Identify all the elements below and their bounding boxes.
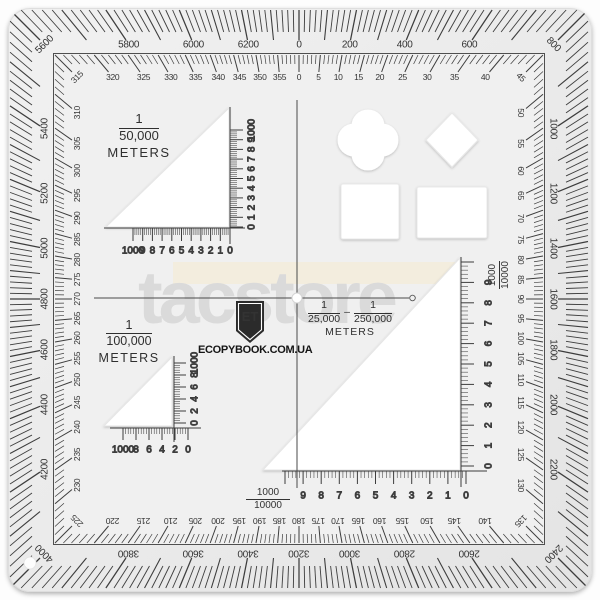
fraction-25k: 1 25,000 [308,300,340,325]
degree-tick [265,534,266,543]
degree-tick [55,152,64,157]
mil-tick [10,320,32,322]
degree-tick [353,55,355,64]
degree-tick [458,55,470,72]
mil-tick [374,10,380,32]
scale-number: 6 [484,340,495,346]
degree-tick [534,389,543,392]
degree-tick [489,526,503,543]
degree-label: 335 [189,72,203,82]
mil-tick [265,10,268,32]
mil-label: 3400 [237,548,259,559]
scale-number: 4 [484,381,495,387]
degree-tick [518,534,526,543]
degree-tick [534,152,543,157]
degree-tick [282,55,283,64]
degree-label: 195 [232,516,246,526]
degree-tick [534,324,543,325]
degree-tick [164,55,169,64]
mil-tick [10,52,32,71]
mil-tick [566,536,588,556]
degree-tick [180,534,184,543]
mil-tick [10,449,32,461]
degree-tick [224,534,227,543]
degree-tick [389,55,392,64]
degree-tick [158,55,168,72]
degree-tick [389,534,392,543]
degree-tick [489,534,496,543]
degree-tick [101,534,108,543]
mil-tick [358,10,363,32]
mil-tick [10,122,32,135]
mil-tick [98,566,113,588]
mil-tick [10,179,40,191]
mil-tick [230,566,235,588]
mil-tick [137,566,149,588]
mil-tick [386,10,393,32]
degree-tick [429,55,434,64]
degree-tick [55,247,64,249]
mil-tick [566,363,588,368]
fraction-denominator: 100,000 [106,334,151,348]
degree-tick [147,55,153,64]
degree-tick [534,180,543,184]
degree-tick [380,534,383,543]
mil-tick [10,369,32,375]
mil-tick [10,463,32,476]
degree-tick [534,269,543,270]
mil-tick [566,501,588,518]
degree-tick [332,534,333,543]
degree-label: 155 [395,516,409,526]
degree-tick [269,534,270,543]
mil-tick [10,217,32,223]
degree-tick [534,108,543,115]
mil-tick [159,10,170,32]
scale-number: 8 [318,491,324,502]
degree-tick [440,534,445,543]
mil-tick [566,98,588,113]
mil-tick [527,566,546,588]
degree-tick [534,446,543,452]
degree-tick [328,534,329,543]
degree-tick [55,79,64,87]
mil-label: 3600 [182,548,204,559]
degree-tick [419,55,424,64]
mil-tick [114,566,128,588]
degree-tick [489,55,503,72]
mil-tick [10,137,32,149]
degree-tick [526,405,543,413]
mil-label: 5000 [40,237,51,259]
degree-tick [349,55,351,64]
mil-tick [32,566,52,588]
scale-number: 2 [484,422,495,428]
mil-tick [10,331,32,334]
degree-label: 0 [297,72,302,82]
degree-tick [269,55,270,64]
mil-tick [566,42,588,62]
degree-tick [252,55,254,64]
mil-tick [10,315,32,316]
mil-tick [106,558,126,588]
mil-tick [199,566,207,588]
mil-tick [114,10,128,32]
degree-tick [534,265,543,266]
scale-number: 0 [227,246,233,257]
scale-100k-label: 1 100,000 METERS [96,318,162,365]
degree-label: 30 [423,72,432,82]
degree-tick [534,215,543,218]
degree-tick [526,278,543,279]
degree-tick [534,220,543,223]
degree-tick [353,534,355,543]
degree-label: 50 [516,108,526,117]
degree-tick [55,489,64,496]
degree-tick [122,534,129,543]
degree-tick [55,252,64,254]
mil-tick [470,566,484,588]
scale-number: 4 [247,185,258,191]
mil-tick [558,351,588,357]
unit-label: METERS [100,146,178,161]
scale-number: 9 [140,246,146,257]
degree-label: 305 [72,136,82,150]
mil-tick [435,10,446,32]
mil-tick [145,10,161,40]
mil-tick [463,10,476,32]
mil-tick [10,406,40,418]
degree-tick [526,360,543,365]
degree-label: 165 [351,516,365,526]
degree-tick [371,55,374,64]
degree-tick [458,55,464,64]
degree-tick [55,229,64,232]
mil-tick [558,406,588,418]
mil-tick [10,437,40,453]
degree-tick [55,278,72,279]
mil-tick [386,566,393,588]
degree-label: 285 [72,232,82,246]
mil-tick [558,325,588,328]
degree-tick [134,534,140,543]
degree-tick [446,55,452,64]
mil-tick [10,429,32,440]
mil-tick [247,10,251,32]
degree-tick [382,526,388,543]
degree-tick [164,534,169,543]
degree-tick [55,265,64,266]
degree-tick [55,430,72,440]
mil-tick [566,369,588,375]
degree-tick [265,55,266,64]
degree-tick [55,526,72,543]
mil-tick [566,556,588,577]
mil-tick [341,10,344,32]
mil-tick [566,114,588,128]
degree-tick [534,429,543,434]
degree-tick [55,382,72,388]
scale-number: 0 [463,491,469,502]
degree-tick [371,534,374,543]
degree-tick [55,215,64,218]
scale-number: 0 [190,420,201,426]
mil-tick [493,10,509,32]
scale-number: 4 [190,396,201,402]
scale-number: 1 [218,246,224,257]
degree-tick [534,353,543,355]
mil-tick [566,331,588,334]
degree-tick [534,122,543,129]
scale-number: 4 [188,246,194,257]
degree-tick [534,458,543,464]
degree-tick [238,534,240,543]
degree-label: 105 [516,352,526,366]
mil-tick [336,10,339,32]
fraction-numerator: 1 [354,300,392,314]
mil-tick [205,10,212,32]
degree-label: 5 [316,72,321,82]
mil-tick [363,566,368,588]
degree-tick [534,229,543,232]
degree-label: 150 [420,516,434,526]
mil-tick [566,493,588,509]
degree-tick [234,55,239,72]
degree-tick [55,319,72,320]
cutout-quatrefoil [338,110,399,171]
scale-number: 7 [337,491,343,502]
scale-number: 1 [484,442,495,448]
degree-label: 60 [516,166,526,175]
degree-tick [55,389,64,392]
corner-hole [24,557,36,569]
mil-tick [325,10,328,40]
mil-tick [224,566,230,588]
degree-tick [55,185,72,193]
degree-tick [55,205,64,208]
mil-tick [247,566,251,588]
degree-tick [152,55,157,64]
degree-tick [319,526,320,543]
degree-tick [55,101,64,108]
mil-tick [566,341,588,344]
mil-tick [566,159,588,170]
fraction-250k: 1 250,000 [354,300,392,325]
mil-tick [21,566,42,588]
mil-tick [558,472,588,492]
scale-number: 3 [409,491,415,502]
degree-tick [55,94,72,108]
mil-label: 6000 [183,40,205,51]
degree-tick [534,404,543,408]
degree-tick [55,380,64,383]
mil-tick [205,566,212,588]
mil-tick [470,10,484,32]
mil-tick [320,566,322,588]
degree-tick [55,134,64,140]
scale-number: 2 [208,246,214,257]
mil-label: 1400 [548,238,559,260]
mil-tick [10,336,32,339]
degree-tick [115,55,122,64]
mil-tick [10,114,32,128]
degree-tick [55,489,72,503]
degree-tick [94,55,108,72]
mil-tick [10,259,32,262]
degree-tick [483,55,490,64]
degree-tick [55,446,64,452]
mil-tick [566,137,588,149]
mil-tick [288,566,289,588]
degree-tick [534,332,543,333]
degree-tick [55,269,64,270]
degree-label: 205 [188,516,202,526]
degree-tick [256,526,259,543]
degree-tick [169,55,174,64]
mil-tick [42,10,62,32]
mil-tick [336,566,339,588]
mil-tick [10,325,40,328]
scale-number: 0 [484,463,495,469]
mil-tick [253,10,256,32]
degree-tick [243,55,245,64]
mil-tick [558,106,588,126]
mil-tick [10,253,32,256]
mil-tick [429,566,440,588]
mil-tick [71,10,88,32]
scale-number: 8 [150,246,156,257]
scale-number: 2 [172,445,178,456]
fraction-denominator: 10000 [500,261,511,289]
mil-tick [10,392,32,400]
degree-label: 295 [72,188,82,202]
mil-tick [10,152,32,163]
protractor-photo: tacstore 020040060080010 [0,0,600,600]
mil-tick [10,236,32,241]
degree-label: 325 [137,72,151,82]
degree-label: 355 [273,72,287,82]
mil-tick [566,449,588,461]
mil-tick [566,259,588,262]
degree-label: 185 [272,516,286,526]
mil-tick [566,265,588,268]
degree-tick [101,55,108,64]
mil-tick [71,566,88,588]
degree-label: 270 [72,292,82,306]
degree-tick [534,101,543,108]
degree-tick [55,419,64,424]
scale-number: 5 [247,175,258,181]
mil-tick [566,130,588,143]
degree-label: 330 [164,72,178,82]
degree-tick [534,511,543,519]
mil-tick [566,392,588,400]
mil-tick [89,10,105,32]
degree-tick [55,353,64,355]
degree-tick [55,476,64,483]
degree-tick [526,256,543,259]
degree-tick [534,282,543,283]
scale-number: 3 [247,195,258,201]
mil-tick [566,546,588,566]
mil-tick [566,21,588,42]
degree-label: 265 [72,311,82,325]
mil-tick [259,10,262,32]
degree-label: 160 [373,516,387,526]
mil-tick [10,470,32,484]
mil-tick [10,242,40,248]
cutout-triangle-25k [263,258,460,470]
degree-tick [55,200,64,204]
degree-tick [534,175,543,180]
degree-tick [122,55,129,64]
degree-tick [87,534,95,543]
degree-tick [534,345,543,347]
mil-tick [288,10,289,32]
mil-tick [341,566,344,588]
degree-tick [534,260,543,261]
degree-tick [55,128,72,140]
degree-tick [518,55,526,64]
degree-tick [55,511,64,519]
scale-number: 3 [198,246,204,257]
degree-tick [55,458,72,470]
mil-label: 2000 [548,394,559,416]
fraction-numerator: 1000 [487,261,500,289]
degree-tick [55,243,64,245]
mil-tick [230,10,235,32]
mil-tick [566,320,588,322]
degree-tick [55,345,64,347]
degree-tick [483,534,490,543]
degree-tick [55,371,64,374]
mil-tick [566,374,588,380]
degree-tick [534,371,543,374]
mil-tick [449,566,461,588]
mil-label: 4800 [40,288,51,310]
mil-tick [566,236,588,241]
mil-tick [566,80,588,97]
mil-tick [10,309,32,310]
degree-tick [534,169,543,174]
scale-number: 7 [159,246,165,257]
mil-label: 1200 [548,183,559,205]
mil-tick [566,509,588,526]
mil-label: 3200 [288,548,310,559]
mil-tick [10,265,32,268]
mil-tick [10,130,32,143]
mil-tick [566,463,588,476]
degree-tick [147,534,153,543]
degree-tick [55,424,64,429]
degree-label: 100 [516,331,526,345]
degree-tick [534,414,543,418]
brand-shield-logo: ET [236,301,264,344]
degree-tick [452,55,458,64]
mil-tick [325,558,328,588]
degree-tick [71,55,79,64]
mil-tick [501,10,518,32]
mil-label: 2600 [458,548,480,559]
mil-tick [437,10,453,40]
degree-tick [404,534,408,543]
mil-tick [10,351,40,357]
degree-tick [534,134,543,140]
mil-tick [566,247,588,251]
degree-tick [534,358,543,360]
scale-number: 0 [247,224,258,230]
degree-tick [366,55,369,64]
